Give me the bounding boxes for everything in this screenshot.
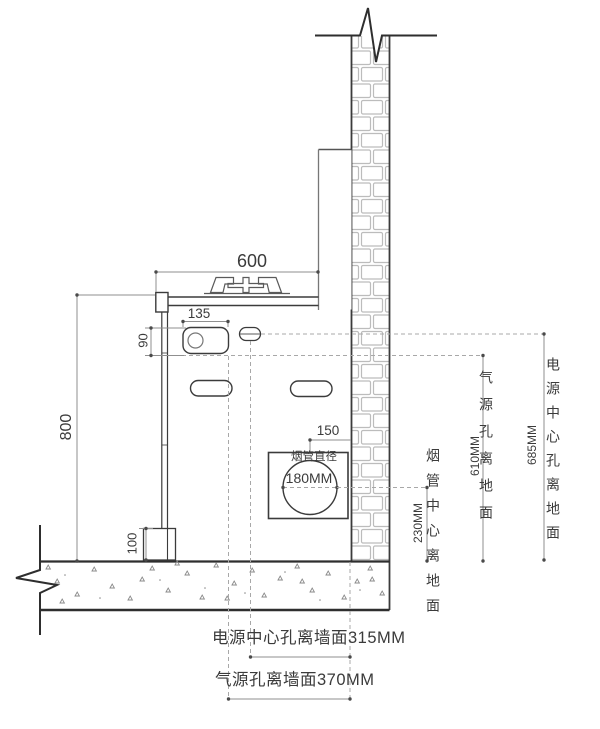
dim-counter-height-label: 800: [59, 407, 75, 447]
dim-flue-center-height-label: 230MM: [412, 495, 424, 551]
dim-base-height-label: 100: [126, 527, 139, 561]
flue-diameter-value: 180MM: [279, 471, 339, 485]
dim-valve-height-label: 90: [137, 329, 150, 353]
cabinet-base-foot: [144, 529, 176, 561]
annotation-power-hole-from-floor: 电源中心孔离地面: [546, 357, 560, 549]
drawing-linework: [0, 0, 600, 729]
duct-chase-panel: [319, 150, 352, 311]
note-gas-hole-from-wall: 气源孔离墙面370MM: [215, 672, 375, 689]
cabinet-side-panel: [162, 312, 168, 560]
concrete-hatch: [46, 561, 384, 603]
gas-valve-box: [183, 328, 229, 354]
dim-valve-width-label: 135: [179, 307, 219, 321]
dim-power-hole-height-label: 685MM: [526, 417, 538, 473]
floor-slab: [16, 525, 390, 635]
technical-drawing-canvas: 600 135 90 800 100 150 烟管直径 180MM 230MM …: [0, 0, 600, 729]
annotation-flue-center-from-floor: 烟管中心离地面: [426, 448, 440, 623]
drawer-handle-right: [291, 381, 333, 397]
annotation-gas-hole-from-floor: 气源孔离地面: [479, 370, 493, 532]
cooktop-profile: [204, 278, 290, 294]
flue-diameter-title: 烟管直径: [284, 452, 344, 464]
dim-flue-to-wall-label: 150: [308, 424, 348, 438]
note-power-hole-from-wall: 电源中心孔离墙面315MM: [212, 630, 406, 647]
dim-counter-width-label: 600: [222, 252, 282, 270]
drawer-handle-left: [191, 381, 233, 397]
power-outlet: [240, 328, 261, 341]
